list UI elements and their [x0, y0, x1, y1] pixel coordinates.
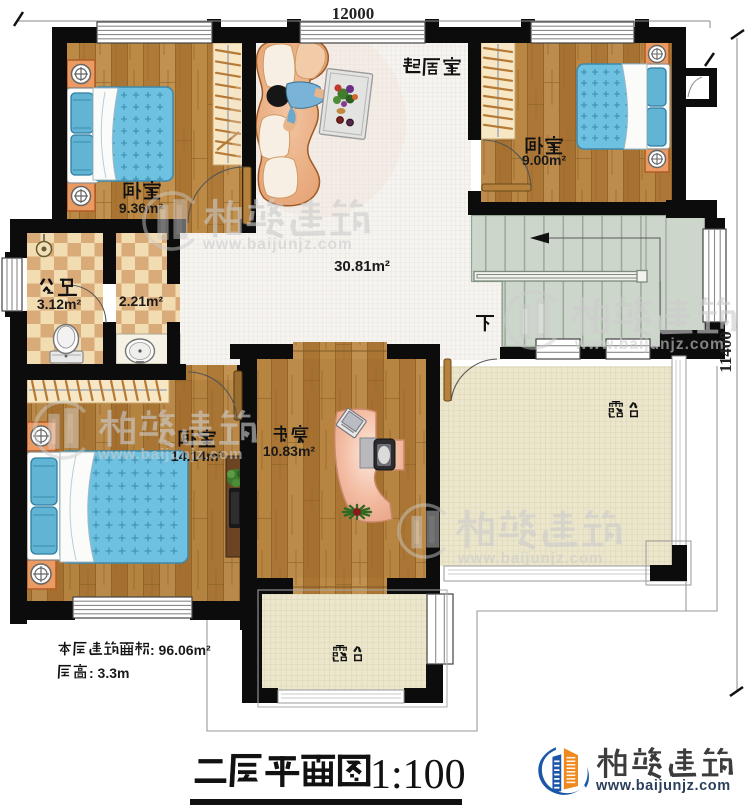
- svg-text:www.baijunjz.com: www.baijunjz.com: [97, 446, 243, 463]
- svg-text:12000: 12000: [332, 4, 375, 23]
- svg-text:9.36m²: 9.36m²: [119, 200, 164, 216]
- svg-text:www.baijunjz.com: www.baijunjz.com: [202, 236, 353, 253]
- svg-text:10.83m²: 10.83m²: [263, 443, 315, 459]
- svg-text:9.00m²: 9.00m²: [522, 152, 567, 168]
- svg-text:1:100: 1:100: [370, 752, 466, 798]
- svg-text:www.baijunjz.com: www.baijunjz.com: [595, 778, 731, 794]
- svg-text:30.81m²: 30.81m²: [334, 258, 390, 275]
- svg-text:www.baijunjz.com: www.baijunjz.com: [574, 336, 725, 353]
- svg-text:2.21m²: 2.21m²: [119, 293, 164, 309]
- svg-text:www.baijunjz.com: www.baijunjz.com: [457, 550, 603, 567]
- svg-text:3.12m²: 3.12m²: [37, 296, 82, 312]
- svg-text:: 3.3m: : 3.3m: [89, 665, 129, 681]
- svg-text:: 96.06m²: : 96.06m²: [150, 642, 211, 658]
